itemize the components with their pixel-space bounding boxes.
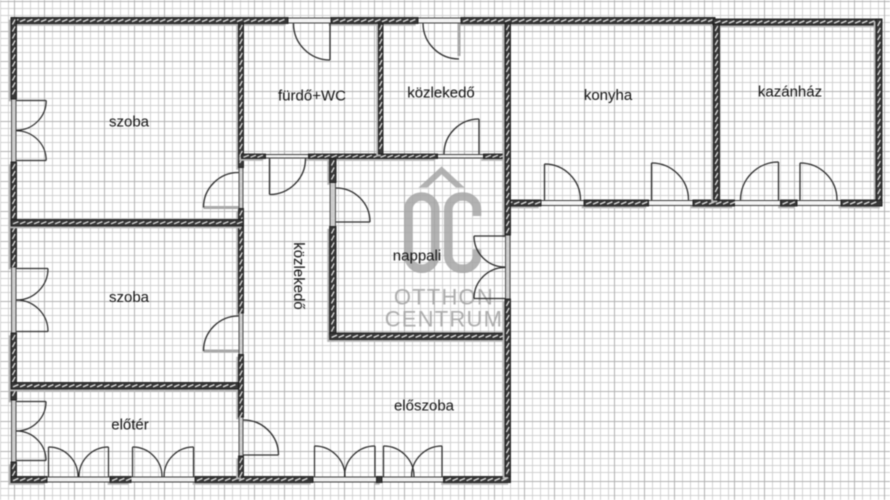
svg-text:előtér: előtér [111,417,149,434]
svg-text:CENTRUM: CENTRUM [385,307,503,332]
svg-text:közlekedő: közlekedő [407,85,475,102]
svg-text:szoba: szoba [109,289,150,306]
svg-text:fürdő+WC: fürdő+WC [278,88,346,105]
svg-text:nappali: nappali [393,248,441,265]
svg-text:konyha: konyha [584,87,633,104]
svg-text:kazánház: kazánház [758,84,822,101]
svg-text:közlekedő: közlekedő [290,242,307,310]
svg-text:szoba: szoba [109,114,150,131]
svg-text:előszoba: előszoba [394,398,455,415]
